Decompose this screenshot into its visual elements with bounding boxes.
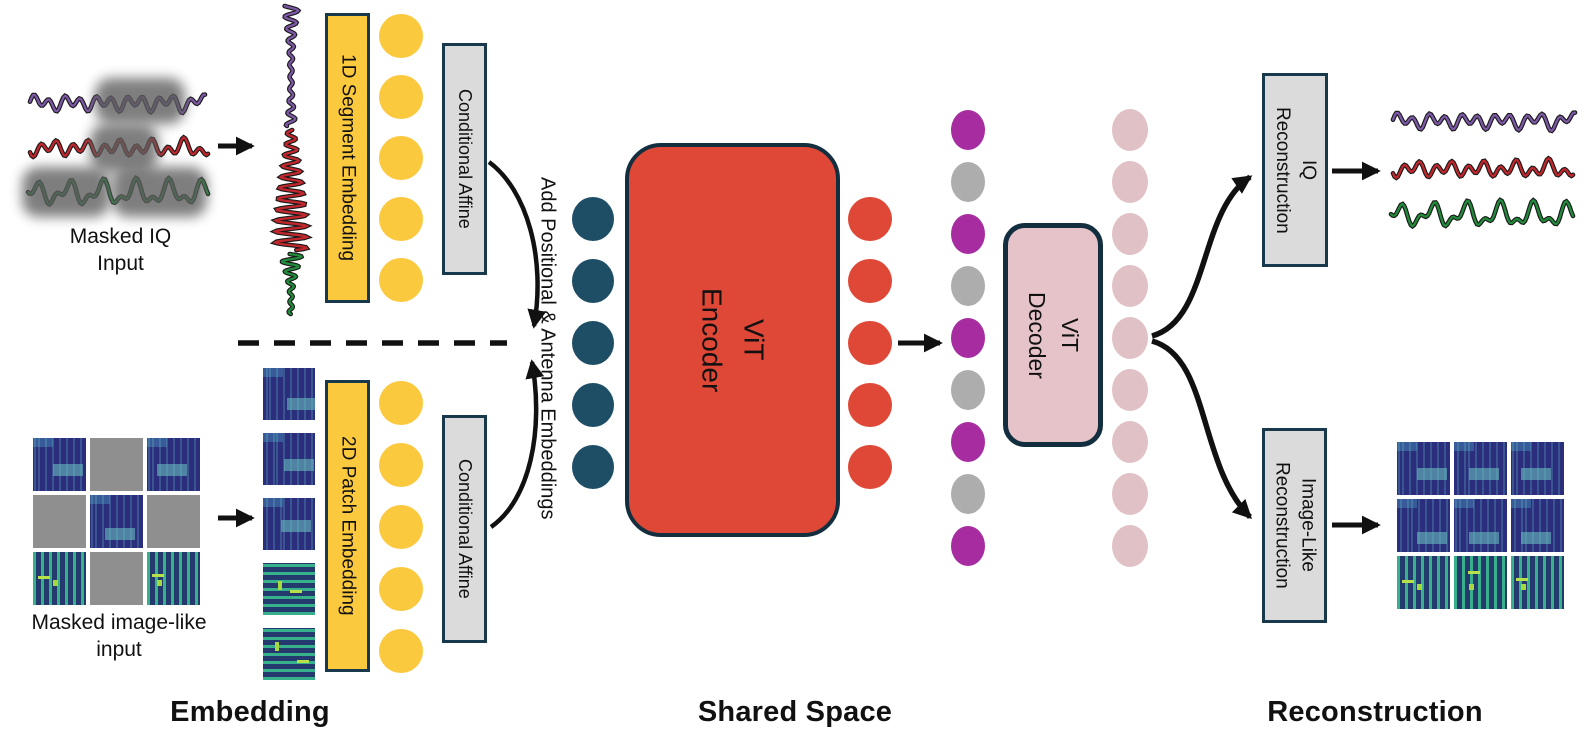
encoder-output-token: [848, 259, 892, 303]
decoder-output-token: [1112, 109, 1148, 151]
1d-segment-embedding-label: 1D Segment Embedding: [337, 54, 359, 261]
decoder-input-token: [951, 266, 985, 306]
iq-mask-blob: [95, 78, 185, 124]
vit-decoder-label: ViT Decoder: [1020, 292, 1086, 379]
iq-token: [379, 258, 423, 302]
vit-decoder-label-line2: Decoder: [1023, 292, 1050, 379]
decoder-input-token: [951, 110, 985, 150]
encoder-input-token: [572, 445, 614, 489]
image-like-reconstruction-box: Image-Like Reconstruction: [1262, 428, 1327, 623]
masked-input-grid-cell: [90, 552, 143, 605]
vit-encoder-box: ViT Encoder: [625, 143, 840, 537]
decoder-input-token: [951, 162, 985, 202]
section-label-embedding: Embedding: [100, 696, 400, 729]
vit-encoder-label: ViT Encoder: [691, 288, 775, 392]
patch-column-cell: [263, 433, 315, 485]
masked-input-grid-cell: [90, 495, 143, 548]
iq-mask-blob: [90, 124, 158, 172]
masked-image-input-caption-line1: Masked image-like: [13, 610, 225, 637]
image-token: [379, 443, 423, 487]
decoder-input-token: [951, 214, 985, 254]
image-token: [379, 629, 423, 673]
image-token: [379, 381, 423, 425]
encoder-input-token: [572, 197, 614, 241]
output-grid-cell: [1397, 556, 1450, 609]
conditional-affine-box-bottom: Conditional Affine: [442, 415, 487, 643]
image-like-reconstruction-label: Image-Like Reconstruction: [1269, 462, 1321, 589]
reconstructed-iq-waveform-red: [1393, 146, 1573, 192]
masked-iq-input-caption-line2: Input: [28, 251, 213, 278]
encoder-input-token: [572, 321, 614, 365]
conditional-affine-label-top: Conditional Affine: [454, 89, 475, 229]
iq-reconstruction-label-line1: IQ: [1297, 160, 1319, 180]
masked-input-grid-cell: [33, 552, 86, 605]
conditional-affine-label-bottom: Conditional Affine: [454, 459, 475, 599]
decoder-input-token: [951, 474, 985, 514]
encoder-output-token: [848, 445, 892, 489]
reconstructed-iq-waveform-green: [1391, 191, 1573, 239]
decoder-output-token: [1112, 265, 1148, 307]
decoder-output-token: [1112, 161, 1148, 203]
vit-decoder-label-line1: ViT: [1056, 318, 1083, 352]
diagram-canvas: Masked IQ Input 1D Segment Embedding Con…: [0, 0, 1595, 749]
section-label-shared-space: Shared Space: [645, 696, 945, 729]
decoder-output-token: [1112, 421, 1148, 463]
masked-image-input-caption: Masked image-like input: [13, 610, 225, 664]
decoder-output-token: [1112, 369, 1148, 411]
iq-token: [379, 136, 423, 180]
add-embeddings-label-wrap: Add Positional & Antenna Embeddings: [527, 143, 567, 553]
2d-patch-embedding-box: 2D Patch Embedding: [325, 380, 370, 672]
encoder-output-token: [848, 321, 892, 365]
output-grid-cell: [1511, 499, 1564, 552]
1d-segment-embedding-box: 1D Segment Embedding: [325, 13, 370, 303]
output-grid-cell: [1454, 499, 1507, 552]
encoder-output-token: [848, 197, 892, 241]
reconstructed-iq-waveform-purple: [1393, 98, 1575, 144]
image-token: [379, 505, 423, 549]
output-grid-cell: [1397, 499, 1450, 552]
patch-column-cell: [263, 628, 315, 680]
image-token: [379, 567, 423, 611]
iq-reconstruction-label-line2: Reconstruction: [1271, 107, 1293, 234]
masked-input-grid-cell: [147, 552, 200, 605]
masked-iq-input-caption-line1: Masked IQ: [28, 224, 213, 251]
masked-input-grid-cell: [147, 438, 200, 491]
decoder-input-token: [951, 370, 985, 410]
encoder-input-token: [572, 383, 614, 427]
encoder-input-token: [572, 259, 614, 303]
output-grid-cell: [1454, 556, 1507, 609]
conditional-affine-box-top: Conditional Affine: [442, 43, 487, 275]
output-grid-cell: [1454, 442, 1507, 495]
vit-decoder-box: ViT Decoder: [1003, 223, 1103, 447]
masked-iq-input-caption: Masked IQ Input: [28, 224, 213, 278]
decoder-output-token: [1112, 213, 1148, 255]
decoder-input-token: [951, 422, 985, 462]
image-like-reconstruction-label-line2: Reconstruction: [1271, 462, 1293, 589]
output-grid-cell: [1397, 442, 1450, 495]
iq-reconstruction-box: IQ Reconstruction: [1262, 73, 1328, 267]
output-grid-cell: [1511, 442, 1564, 495]
masked-input-grid-cell: [33, 495, 86, 548]
section-label-reconstruction: Reconstruction: [1225, 696, 1525, 729]
iq-reconstruction-label: IQ Reconstruction: [1269, 107, 1321, 234]
patch-column-cell: [263, 563, 315, 615]
image-like-reconstruction-label-line1: Image-Like: [1297, 478, 1319, 572]
masked-input-grid-cell: [147, 495, 200, 548]
output-grid-cell: [1511, 556, 1564, 609]
decoder-input-token: [951, 318, 985, 358]
decoder-output-token: [1112, 525, 1148, 567]
iq-mask-blob: [22, 167, 110, 217]
iq-mask-blob: [112, 167, 207, 217]
masked-input-grid-cell: [33, 438, 86, 491]
patch-column-cell: [263, 498, 315, 550]
masked-input-grid-cell: [90, 438, 143, 491]
iq-token: [379, 75, 423, 119]
vit-encoder-label-line2: Encoder: [696, 288, 728, 392]
encoder-output-token: [848, 383, 892, 427]
iq-token: [379, 14, 423, 58]
add-embeddings-label: Add Positional & Antenna Embeddings: [536, 177, 559, 519]
2d-patch-embedding-label: 2D Patch Embedding: [337, 436, 359, 616]
decoder-output-token: [1112, 317, 1148, 359]
patch-column-cell: [263, 368, 315, 420]
decoder-input-token: [951, 526, 985, 566]
decoder-output-token: [1112, 473, 1148, 515]
vit-encoder-label-line1: ViT: [738, 319, 770, 361]
iq-segment-strip: [264, 0, 318, 322]
masked-image-input-caption-line2: input: [13, 637, 225, 664]
iq-token: [379, 197, 423, 241]
